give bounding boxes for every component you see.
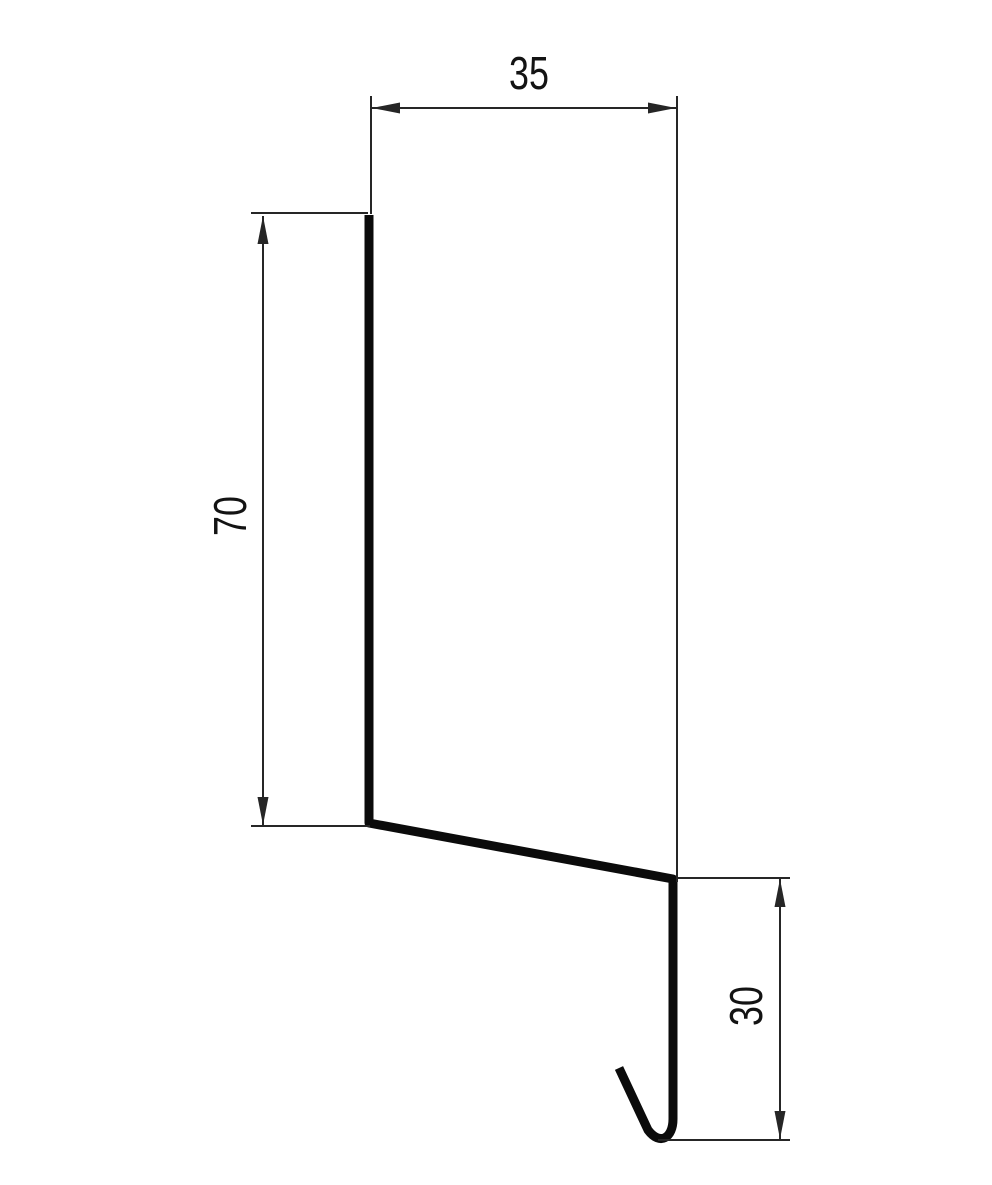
dimension-value-top-width: 35	[509, 48, 549, 99]
drawing-background	[0, 0, 992, 1185]
technical-drawing-canvas: 35 70 30	[0, 0, 992, 1185]
dimension-value-left-height: 70	[205, 496, 256, 536]
drawing-page: 35 70 30	[0, 0, 992, 1185]
dimension-value-right-height: 30	[721, 986, 772, 1026]
